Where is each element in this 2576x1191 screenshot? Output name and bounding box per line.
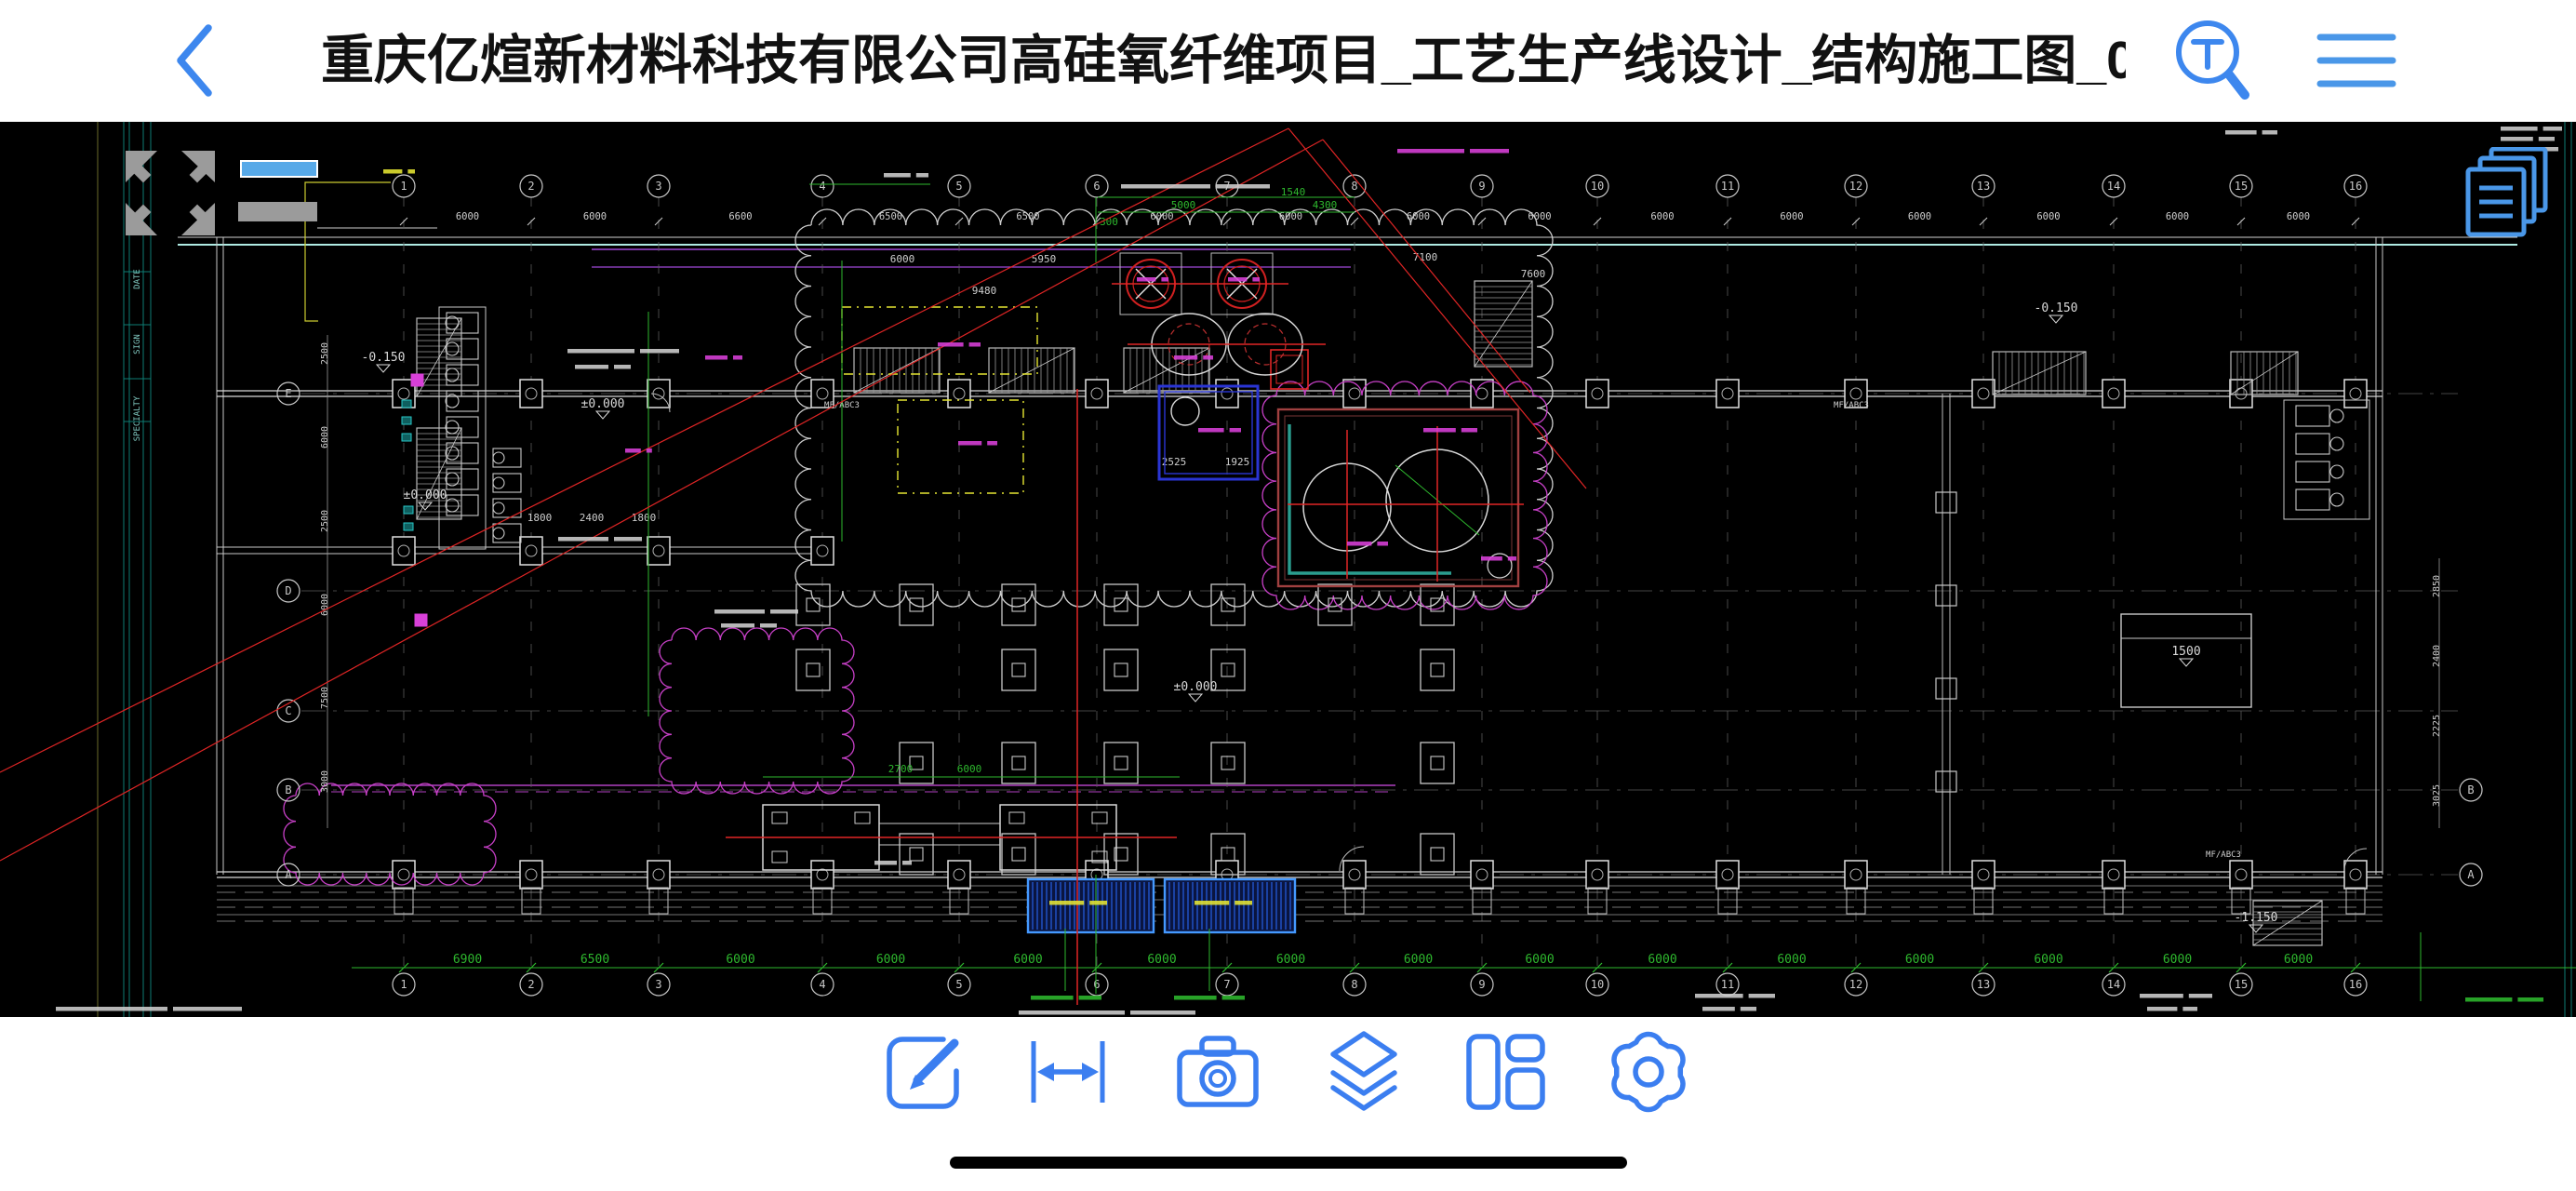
svg-text:6500: 6500 bbox=[1016, 211, 1039, 222]
svg-text:6000: 6000 bbox=[1276, 953, 1305, 967]
menu-button[interactable] bbox=[2311, 24, 2404, 97]
svg-text:14: 14 bbox=[2107, 180, 2120, 193]
svg-text:1800: 1800 bbox=[527, 512, 553, 524]
layers-stack-icon bbox=[1320, 1028, 1408, 1116]
svg-text:6000: 6000 bbox=[1905, 953, 1934, 967]
svg-text:SIGN: SIGN bbox=[133, 334, 142, 355]
text-search-button[interactable] bbox=[2163, 9, 2265, 112]
svg-text:6000: 6000 bbox=[2166, 211, 2189, 222]
cad-static-shapes bbox=[305, 182, 2367, 871]
svg-text:2700: 2700 bbox=[888, 763, 914, 775]
svg-text:1540: 1540 bbox=[1281, 186, 1306, 198]
svg-text:-0.150: -0.150 bbox=[362, 351, 406, 365]
svg-text:1: 1 bbox=[400, 978, 407, 991]
svg-text:2: 2 bbox=[527, 978, 534, 991]
svg-text:2525: 2525 bbox=[1162, 456, 1187, 468]
svg-text:6000: 6000 bbox=[1150, 211, 1173, 222]
svg-text:10: 10 bbox=[1591, 180, 1604, 193]
svg-text:5: 5 bbox=[955, 180, 962, 193]
svg-text:6000: 6000 bbox=[2036, 211, 2060, 222]
svg-text:12: 12 bbox=[1849, 180, 1862, 193]
svg-text:6000: 6000 bbox=[1525, 953, 1554, 967]
svg-text:4: 4 bbox=[819, 978, 825, 991]
cad-drawing: DATESIGNSPECIALTY69006500600060006000600… bbox=[0, 121, 2576, 1017]
page-title: 重庆亿煊新材料科技有限公司高硅氧纤维项目_工艺生产线设计_结构施工图_0114_… bbox=[321, 0, 2126, 121]
svg-text:6: 6 bbox=[1093, 978, 1100, 991]
svg-text:16: 16 bbox=[2349, 180, 2362, 193]
snapshot-button[interactable] bbox=[1174, 1028, 1261, 1116]
svg-text:11: 11 bbox=[1721, 180, 1734, 193]
annotate-pencil-icon bbox=[882, 1028, 969, 1116]
svg-text:-0.150: -0.150 bbox=[2035, 301, 2078, 315]
chevron-left-icon bbox=[166, 20, 231, 100]
legend-bar-blue bbox=[240, 160, 318, 178]
annotate-button[interactable] bbox=[882, 1028, 969, 1116]
svg-text:6000: 6000 bbox=[320, 426, 330, 448]
svg-text:14: 14 bbox=[2107, 978, 2120, 991]
svg-text:2400: 2400 bbox=[580, 512, 605, 524]
svg-text:DATE: DATE bbox=[133, 269, 142, 289]
svg-text:8: 8 bbox=[1351, 978, 1357, 991]
svg-text:6000: 6000 bbox=[2287, 211, 2310, 222]
svg-text:6000: 6000 bbox=[876, 953, 905, 967]
svg-text:6000: 6000 bbox=[1780, 211, 1803, 222]
svg-text:2850: 2850 bbox=[2432, 575, 2442, 597]
fullscreen-expand-button[interactable] bbox=[124, 149, 217, 237]
svg-text:13: 13 bbox=[1977, 978, 1990, 991]
svg-text:6500: 6500 bbox=[581, 953, 609, 967]
settings-button[interactable] bbox=[1605, 1028, 1692, 1116]
svg-text:C: C bbox=[285, 704, 291, 717]
svg-text:15: 15 bbox=[2235, 180, 2248, 193]
svg-text:6000: 6000 bbox=[583, 211, 607, 222]
svg-text:2500: 2500 bbox=[320, 510, 330, 532]
svg-text:1925: 1925 bbox=[1225, 456, 1250, 468]
svg-text:16: 16 bbox=[2349, 978, 2362, 991]
svg-text:±0.000: ±0.000 bbox=[581, 397, 625, 411]
svg-text:7: 7 bbox=[1223, 978, 1230, 991]
svg-text:6000: 6000 bbox=[2284, 953, 2313, 967]
svg-text:9480: 9480 bbox=[972, 285, 997, 297]
svg-text:6000: 6000 bbox=[1528, 211, 1551, 222]
svg-text:B: B bbox=[2467, 783, 2474, 796]
svg-text:4300: 4300 bbox=[1313, 199, 1338, 211]
svg-text:6000: 6000 bbox=[1147, 953, 1176, 967]
svg-text:6000: 6000 bbox=[1648, 953, 1676, 967]
svg-text:6000: 6000 bbox=[890, 253, 915, 265]
svg-text:6000: 6000 bbox=[957, 763, 982, 775]
svg-text:3: 3 bbox=[655, 978, 661, 991]
svg-text:5000: 5000 bbox=[1171, 199, 1196, 211]
svg-text:±0.000: ±0.000 bbox=[1174, 680, 1218, 694]
svg-text:6000: 6000 bbox=[456, 211, 479, 222]
legend-bar-gray bbox=[238, 202, 317, 221]
sheet-pages-button[interactable] bbox=[2465, 147, 2554, 238]
svg-text:±0.000: ±0.000 bbox=[404, 488, 447, 502]
svg-text:6000: 6000 bbox=[1650, 211, 1674, 222]
svg-text:13: 13 bbox=[1977, 180, 1990, 193]
svg-text:15: 15 bbox=[2235, 978, 2248, 991]
svg-text:6000: 6000 bbox=[1407, 211, 1430, 222]
measure-button[interactable] bbox=[1024, 1028, 1112, 1116]
svg-text:A: A bbox=[285, 868, 292, 881]
svg-text:6600: 6600 bbox=[728, 211, 752, 222]
svg-text:6000: 6000 bbox=[2034, 953, 2062, 967]
svg-text:4: 4 bbox=[819, 180, 825, 193]
svg-text:6000: 6000 bbox=[1404, 953, 1433, 967]
camera-snapshot-icon bbox=[1174, 1028, 1261, 1116]
text-search-icon bbox=[2163, 9, 2265, 112]
svg-text:1800: 1800 bbox=[632, 512, 657, 524]
svg-text:3000: 3000 bbox=[320, 770, 330, 793]
layout-button[interactable] bbox=[1462, 1028, 1549, 1116]
title-bar: 重庆亿煊新材料科技有限公司高硅氧纤维项目_工艺生产线设计_结构施工图_0114_… bbox=[0, 0, 2576, 122]
yellow-dashed-footings bbox=[842, 307, 1037, 493]
layout-panels-icon bbox=[1462, 1028, 1549, 1116]
svg-text:2: 2 bbox=[527, 180, 534, 193]
svg-text:B: B bbox=[285, 783, 291, 796]
app-screen: 重庆亿煊新材料科技有限公司高硅氧纤维项目_工艺生产线设计_结构施工图_0114_… bbox=[0, 0, 2576, 1191]
svg-text:3025: 3025 bbox=[2432, 784, 2442, 807]
svg-text:3: 3 bbox=[655, 180, 661, 193]
hamburger-menu-icon bbox=[2311, 24, 2404, 97]
svg-text:6000: 6000 bbox=[726, 953, 754, 967]
settings-gear-icon bbox=[1605, 1028, 1692, 1116]
svg-text:6: 6 bbox=[1093, 180, 1100, 193]
svg-text:9: 9 bbox=[1478, 180, 1485, 193]
svg-text:1500: 1500 bbox=[2171, 645, 2200, 659]
svg-text:MF/ABC3: MF/ABC3 bbox=[1834, 401, 1869, 410]
svg-text:1: 1 bbox=[400, 180, 407, 193]
svg-text:6000: 6000 bbox=[1279, 211, 1302, 222]
svg-text:2400: 2400 bbox=[2432, 645, 2442, 667]
cad-viewport[interactable]: DATESIGNSPECIALTY69006500600060006000600… bbox=[0, 121, 2576, 1017]
svg-text:MF/ABC3: MF/ABC3 bbox=[2206, 850, 2241, 860]
svg-text:6000: 6000 bbox=[1777, 953, 1806, 967]
svg-text:D: D bbox=[285, 584, 291, 597]
layers-button[interactable] bbox=[1320, 1028, 1408, 1116]
svg-text:-1.150: -1.150 bbox=[2235, 911, 2278, 925]
svg-text:6000: 6000 bbox=[1013, 953, 1042, 967]
svg-text:SPECIALTY: SPECIALTY bbox=[133, 395, 142, 441]
svg-text:2225: 2225 bbox=[2432, 715, 2442, 737]
svg-text:6000: 6000 bbox=[320, 594, 330, 616]
svg-text:E: E bbox=[285, 387, 291, 400]
svg-text:7500: 7500 bbox=[320, 687, 330, 709]
svg-text:12: 12 bbox=[1849, 978, 1862, 991]
svg-text:5: 5 bbox=[955, 978, 962, 991]
svg-text:7600: 7600 bbox=[1521, 268, 1546, 280]
svg-text:10: 10 bbox=[1591, 978, 1604, 991]
svg-text:6000: 6000 bbox=[1908, 211, 1931, 222]
measure-distance-icon bbox=[1024, 1028, 1112, 1116]
back-button[interactable] bbox=[166, 20, 231, 100]
svg-text:9: 9 bbox=[1478, 978, 1485, 991]
svg-text:6500: 6500 bbox=[879, 211, 902, 222]
home-indicator[interactable] bbox=[950, 1157, 1627, 1169]
expand-arrows-icon bbox=[124, 149, 217, 237]
stacked-documents-icon bbox=[2465, 147, 2554, 238]
svg-text:11: 11 bbox=[1721, 978, 1734, 991]
svg-text:A: A bbox=[2467, 868, 2475, 881]
svg-text:6000: 6000 bbox=[2163, 953, 2192, 967]
svg-text:6900: 6900 bbox=[453, 953, 482, 967]
svg-text:2500: 2500 bbox=[320, 342, 330, 365]
